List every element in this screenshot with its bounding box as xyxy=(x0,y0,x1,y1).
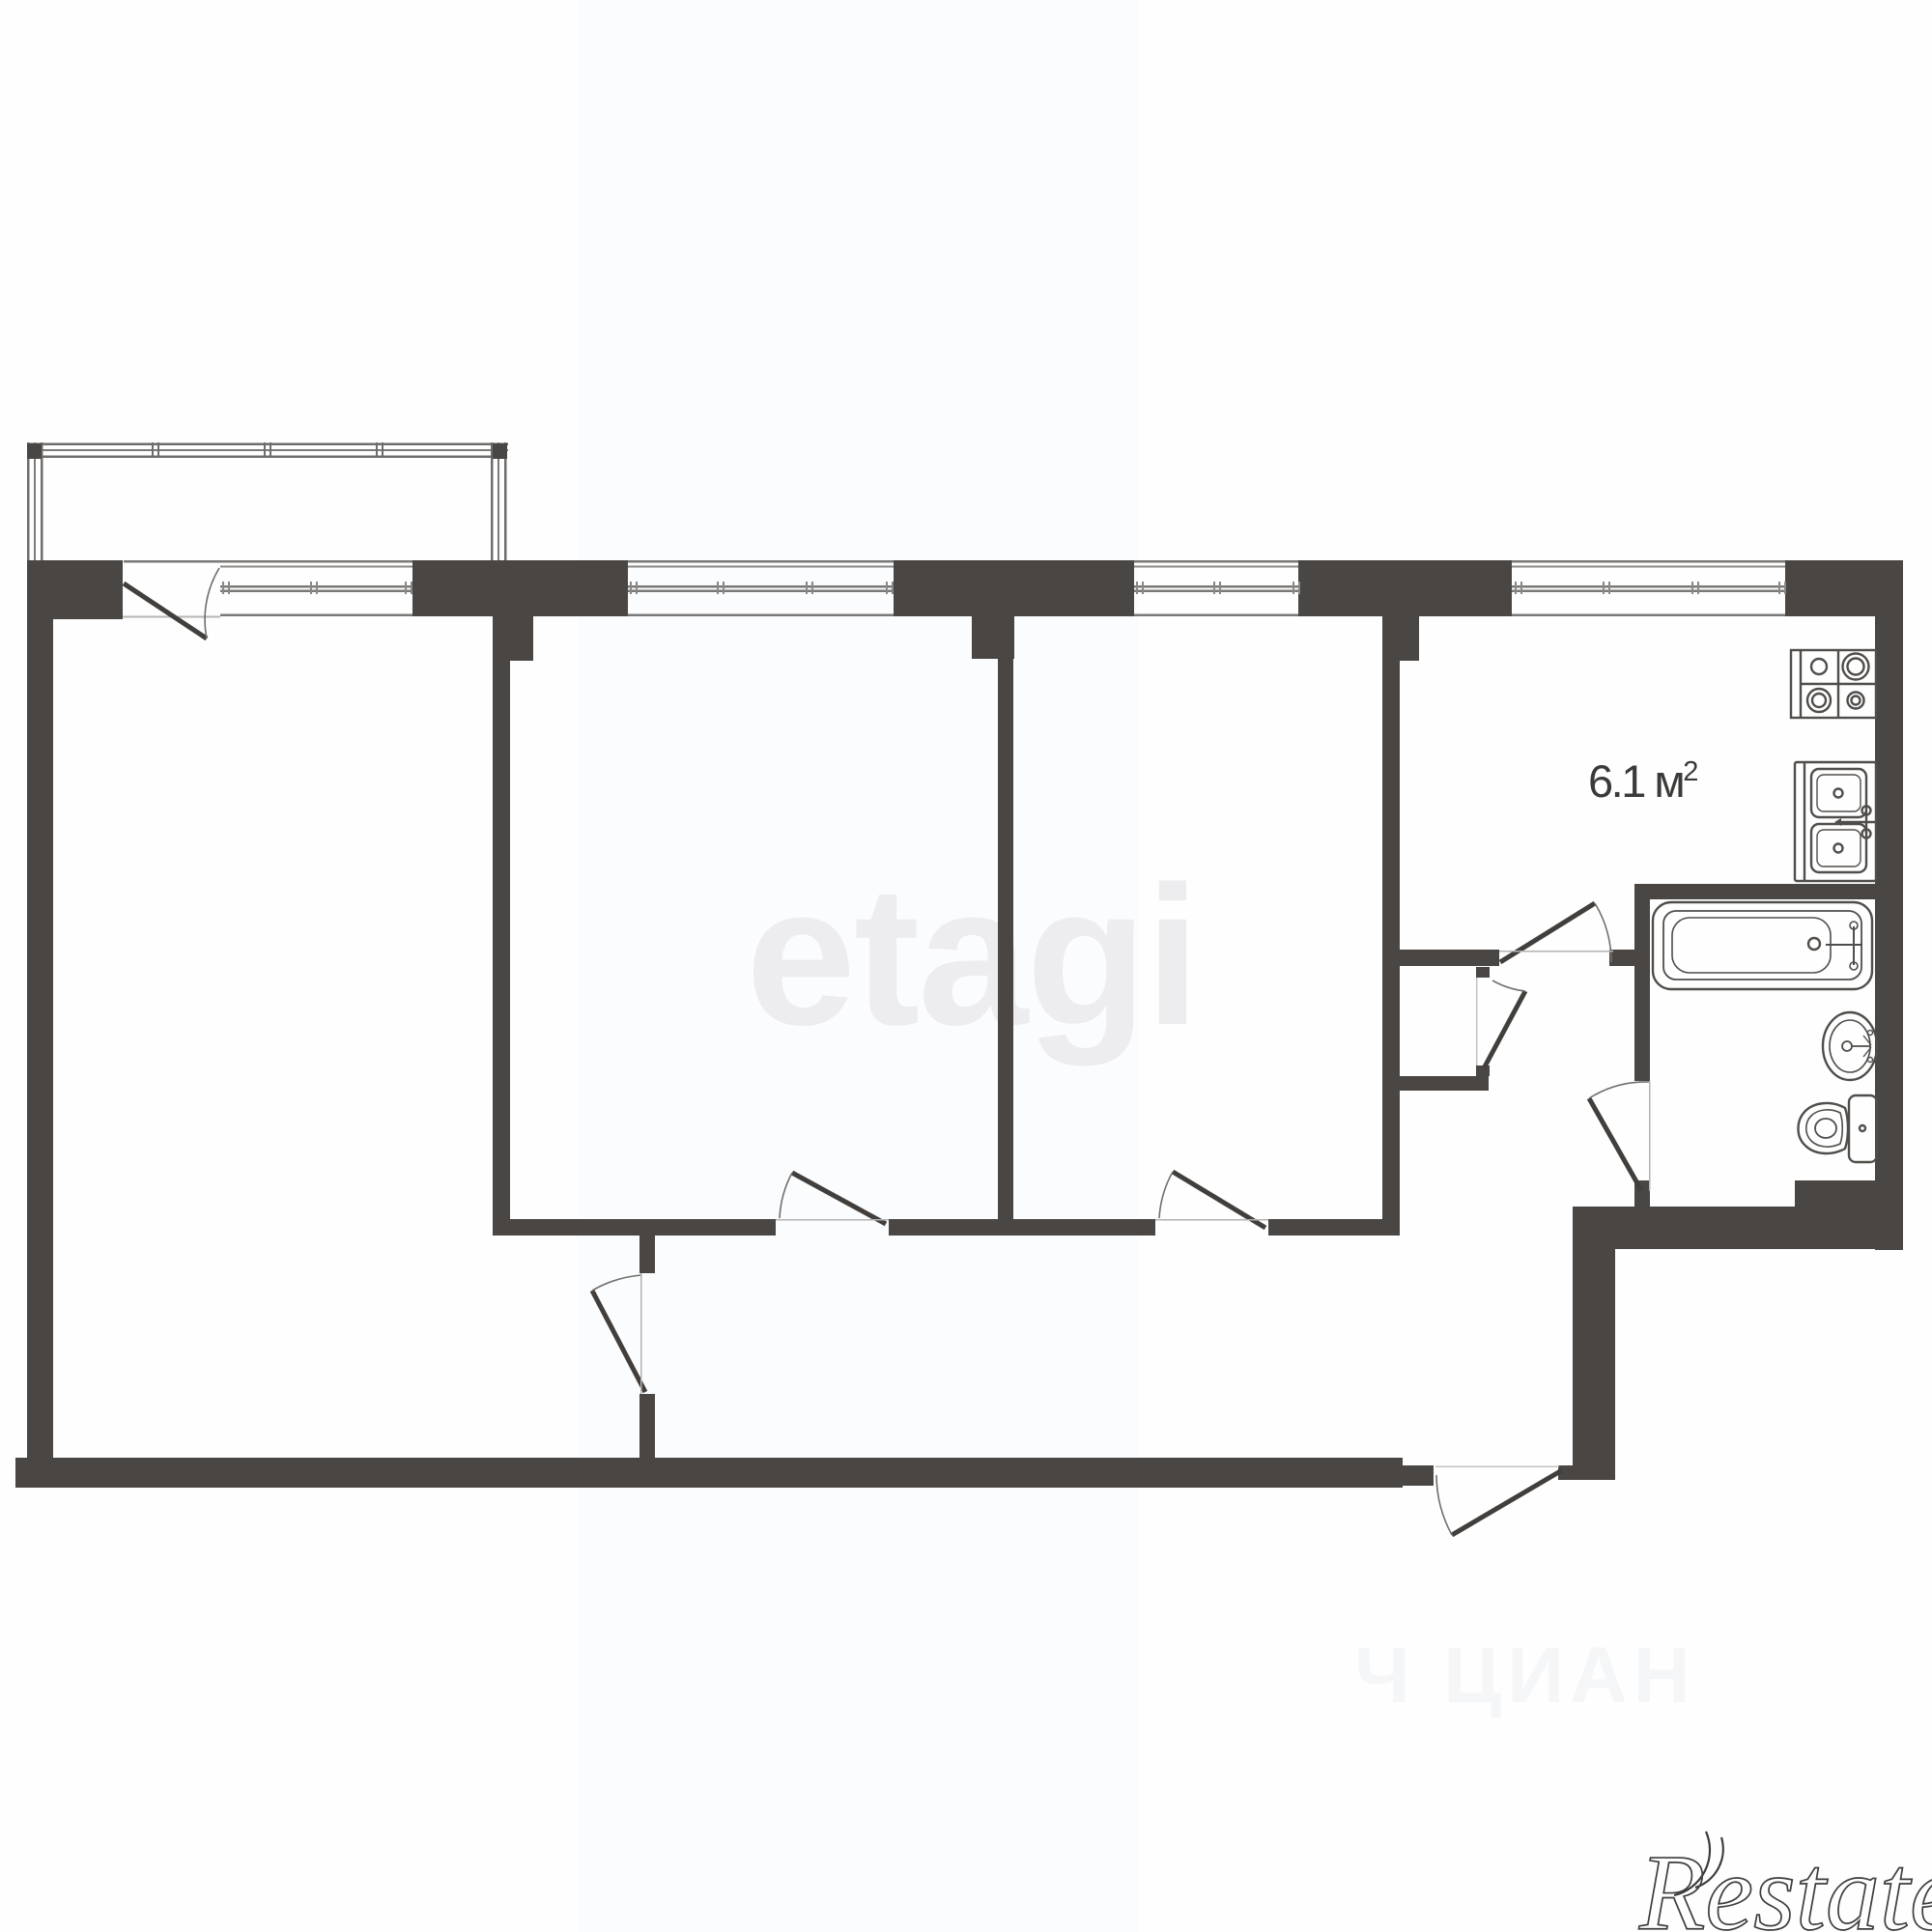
svg-text:Restate: Restate xyxy=(1638,1833,1932,1932)
svg-text:Ч ЦИАН: Ч ЦИАН xyxy=(1354,1632,1696,1719)
svg-text:6.1 м2: 6.1 м2 xyxy=(1588,755,1697,807)
svg-text:etagi: etagi xyxy=(746,845,1198,1066)
